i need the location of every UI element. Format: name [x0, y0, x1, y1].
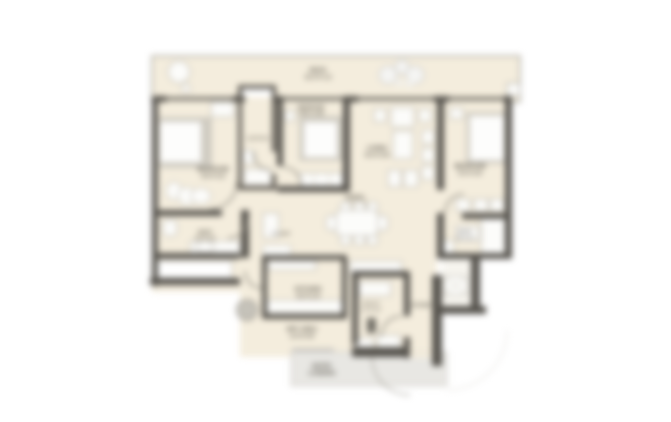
- svg-text:1.2 X 2.1: 1.2 X 2.1: [247, 136, 269, 142]
- svg-text:FOYER: FOYER: [412, 303, 431, 309]
- svg-text:2.1 X 1.5: 2.1 X 1.5: [195, 236, 215, 242]
- svg-text:3.0 X 2.4: 3.0 X 2.4: [296, 294, 321, 300]
- svg-text:BEDROOM: BEDROOM: [454, 164, 485, 170]
- svg-text:11.4 X 1.2: 11.4 X 1.2: [304, 75, 332, 81]
- svg-text:BATH: BATH: [459, 229, 473, 235]
- svg-text:UTILITY: UTILITY: [362, 301, 381, 307]
- svg-text:6.4 X 3.6: 6.4 X 3.6: [365, 153, 390, 159]
- svg-text:LIVING: LIVING: [367, 146, 387, 152]
- svg-text:DRY AREA: DRY AREA: [287, 327, 318, 333]
- svg-text:DECK: DECK: [309, 68, 327, 74]
- svg-text:BEDROOM: BEDROOM: [197, 167, 228, 173]
- svg-text:LANDING: LANDING: [308, 371, 336, 377]
- svg-text:1.2 X 2.0: 1.2 X 2.0: [361, 307, 381, 313]
- svg-text:KITCHEN: KITCHEN: [295, 287, 322, 293]
- svg-text:ENTRY: ENTRY: [312, 364, 332, 370]
- svg-text:3.5 X 3.2: 3.5 X 3.2: [201, 174, 226, 180]
- svg-text:3.55 X 3.05: 3.55 X 3.05: [298, 111, 324, 117]
- svg-text:T.V UNIT: T.V UNIT: [271, 231, 291, 237]
- svg-text:3.3 X 3.0: 3.3 X 3.0: [458, 171, 483, 177]
- svg-text:1.5 X 2.1: 1.5 X 2.1: [455, 235, 475, 241]
- svg-text:2.4 X 0.9: 2.4 X 0.9: [290, 334, 315, 340]
